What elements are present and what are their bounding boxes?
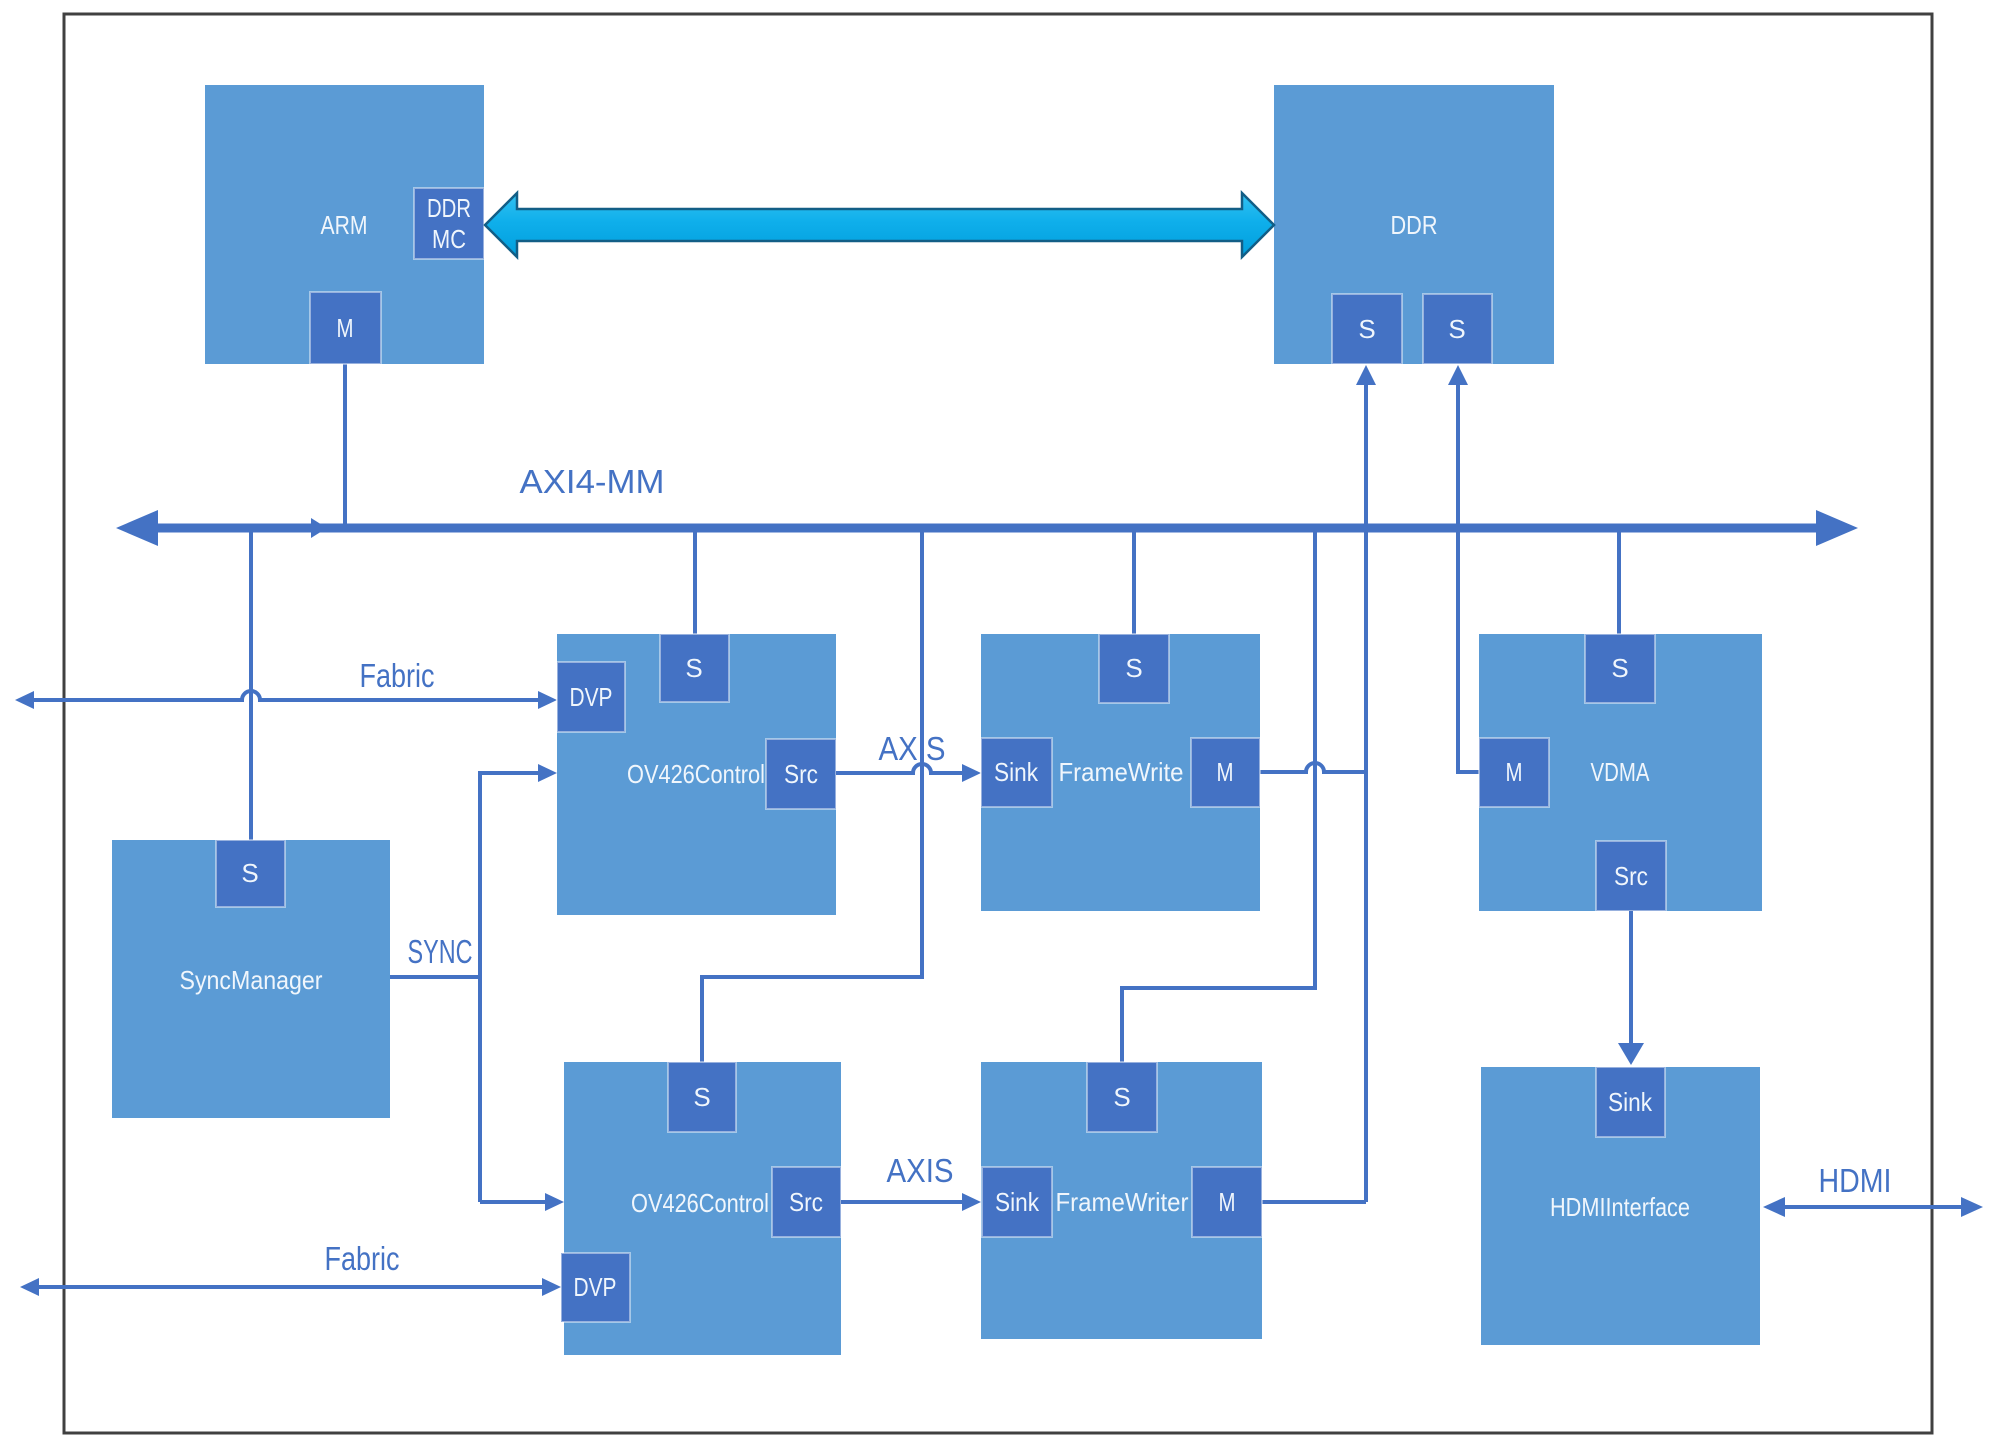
- svg-text:S: S: [693, 1082, 710, 1112]
- svg-text:M: M: [1219, 1187, 1236, 1217]
- svg-text:S: S: [1611, 653, 1628, 683]
- svg-text:Src: Src: [784, 759, 818, 789]
- svg-text:FrameWrite: FrameWrite: [1059, 757, 1184, 787]
- svg-text:OV426Control: OV426Control: [631, 1188, 769, 1218]
- svg-text:M: M: [1217, 757, 1234, 787]
- svg-text:MC: MC: [432, 224, 466, 254]
- svg-text:Sink: Sink: [1608, 1087, 1653, 1117]
- svg-text:HDMI: HDMI: [1819, 1162, 1892, 1199]
- svg-text:FrameWriter: FrameWriter: [1056, 1187, 1189, 1217]
- svg-text:Sink: Sink: [995, 1187, 1040, 1217]
- svg-text:HDMIInterface: HDMIInterface: [1550, 1192, 1690, 1222]
- svg-text:DVP: DVP: [574, 1272, 617, 1302]
- svg-text:S: S: [685, 653, 702, 683]
- svg-text:DVP: DVP: [570, 682, 613, 712]
- svg-text:OV426Control: OV426Control: [627, 759, 765, 789]
- svg-text:M: M: [337, 313, 354, 343]
- svg-text:SYNC: SYNC: [408, 933, 473, 970]
- svg-text:Fabric: Fabric: [325, 1240, 400, 1277]
- svg-text:VDMA: VDMA: [1591, 757, 1651, 787]
- svg-text:Fabric: Fabric: [360, 657, 435, 694]
- svg-text:DDR: DDR: [1391, 210, 1438, 240]
- svg-text:S: S: [1125, 653, 1142, 683]
- svg-text:AXIS: AXIS: [887, 1152, 954, 1189]
- svg-text:SyncManager: SyncManager: [180, 965, 323, 995]
- svg-text:Src: Src: [789, 1187, 823, 1217]
- svg-text:S: S: [241, 858, 258, 888]
- svg-text:AXIS: AXIS: [879, 730, 946, 767]
- svg-text:ARM: ARM: [321, 210, 368, 240]
- svg-text:AXI4-MM: AXI4-MM: [520, 463, 665, 500]
- svg-text:Sink: Sink: [994, 757, 1039, 787]
- svg-text:S: S: [1448, 314, 1465, 344]
- svg-text:Src: Src: [1614, 861, 1648, 891]
- svg-text:S: S: [1113, 1082, 1130, 1112]
- svg-text:S: S: [1358, 314, 1375, 344]
- svg-text:DDR: DDR: [427, 193, 471, 223]
- svg-text:M: M: [1506, 757, 1523, 787]
